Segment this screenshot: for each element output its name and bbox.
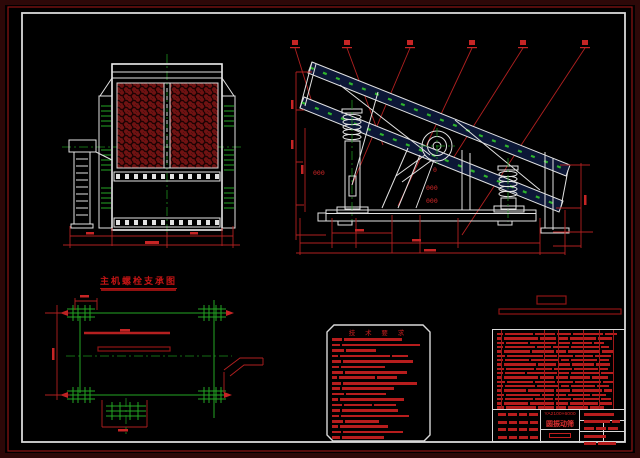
ladder-bracket <box>69 140 112 228</box>
bolt-arrow-markers <box>60 310 234 398</box>
chute-bracket <box>224 358 263 393</box>
tech-requirements-title: 技 术 要 求 <box>327 327 430 337</box>
bom-column-line <box>613 330 614 409</box>
tech-requirements-panel: 技 术 要 求 <box>327 325 430 441</box>
title-block-line <box>540 429 580 430</box>
front-view <box>62 54 242 248</box>
screen-mesh-right <box>170 83 218 168</box>
dim-label-a: 000 <box>313 169 325 177</box>
title-block-drawing-name: 圆振动筛 <box>540 419 580 429</box>
title-block-stamp-box <box>549 433 571 438</box>
side-view: 000 0 000 000 <box>290 40 593 255</box>
dim-label-c: 000 <box>426 184 438 192</box>
bolt-detail <box>102 398 147 434</box>
title-block-line <box>493 409 624 410</box>
bom-column-line <box>558 330 559 409</box>
title-block-model: YA2100×6000 <box>542 411 578 416</box>
dim-label-b: 0 <box>433 166 437 174</box>
parts-list-panel: YA2100×6000 圆振动筛 <box>492 329 625 442</box>
cad-screenshot: 000 0 000 000 <box>0 0 640 458</box>
title-block-left-grid <box>495 411 539 441</box>
title-block-right-grid <box>581 411 624 447</box>
screen-mesh-left <box>117 83 164 168</box>
dim-label-d: 000 <box>426 197 438 205</box>
bom-column-line <box>583 330 584 409</box>
tech-requirements-lines <box>329 337 428 440</box>
spring-symbols-right <box>224 106 234 208</box>
bom-column-line <box>544 330 545 409</box>
bom-header-marks <box>499 296 621 314</box>
bom-column-line <box>501 330 502 409</box>
plan-view-title: 主机螺栓支承图 <box>100 274 177 289</box>
bom-column-line <box>599 330 600 409</box>
anchor-bolt-clusters <box>67 305 226 403</box>
plan-view <box>45 295 263 434</box>
